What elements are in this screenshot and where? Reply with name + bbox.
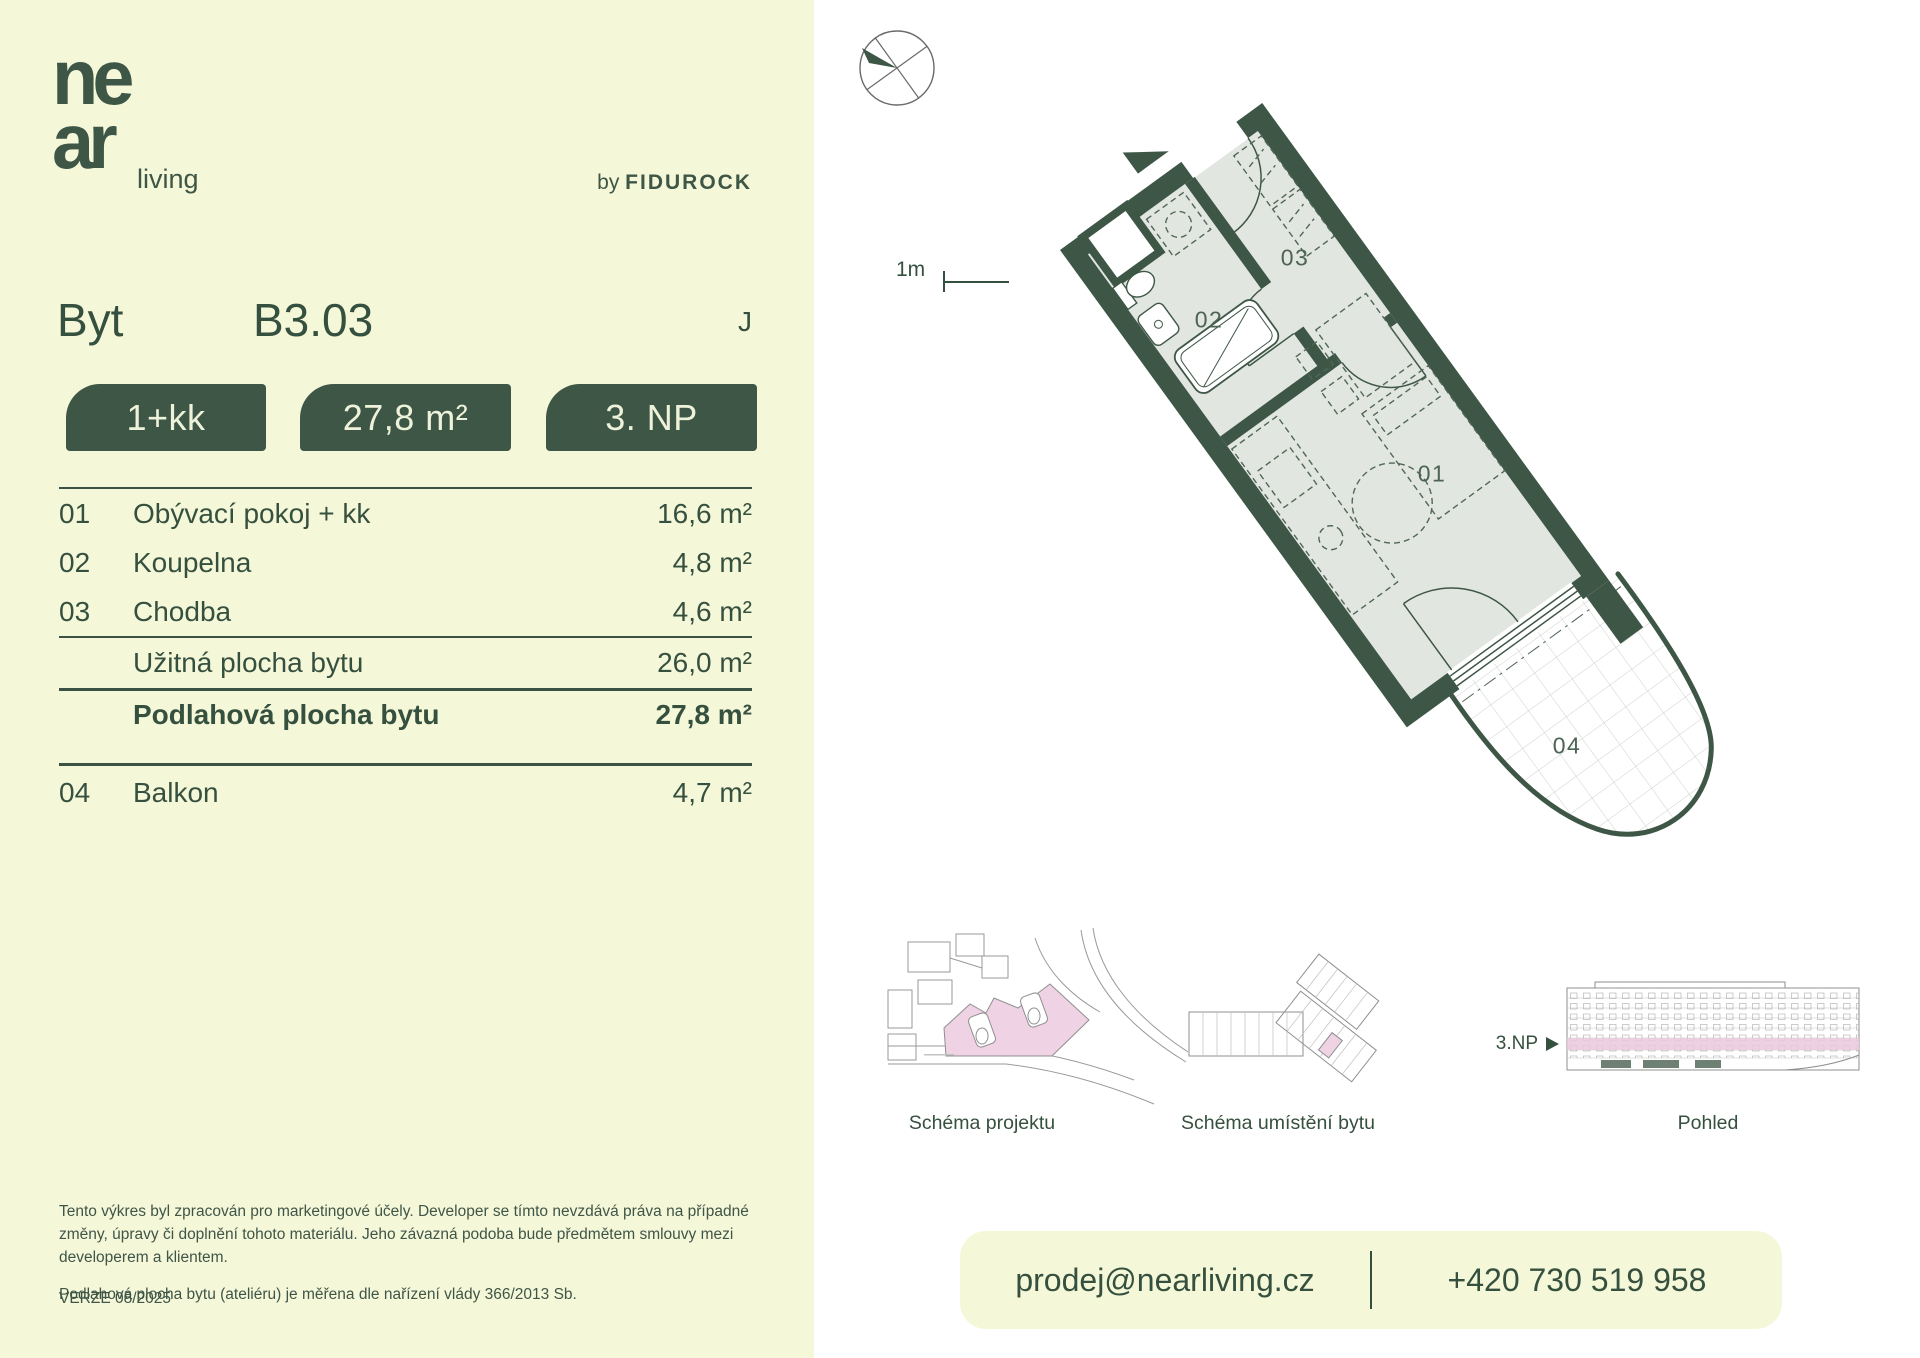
table-row: 03 Chodba 4,6 m² bbox=[59, 587, 752, 636]
room-number: 01 bbox=[59, 498, 133, 530]
unit-location-schematic bbox=[1183, 948, 1393, 1093]
total-area-label: Podlahová plocha bytu bbox=[133, 699, 656, 731]
total-area-value: 27,8 m² bbox=[656, 699, 753, 731]
developer-byline: by FIDUROCK bbox=[420, 171, 752, 195]
info-panel: ne ar living by FIDUROCK Byt B3.03 J 1+k… bbox=[0, 0, 814, 1358]
room-area: 4,6 m² bbox=[673, 596, 752, 628]
plan-room-label-04: 04 bbox=[1553, 733, 1582, 760]
floor-plan-drawing bbox=[1000, 55, 1760, 885]
table-row: 02 Koupelna 4,8 m² bbox=[59, 538, 752, 587]
byline-prefix: by bbox=[597, 171, 619, 194]
site-plan-schematic bbox=[886, 928, 1188, 1106]
logo-line-2: ar bbox=[52, 110, 129, 174]
room-number: 02 bbox=[59, 547, 133, 579]
contact-email[interactable]: prodej@nearliving.cz bbox=[960, 1262, 1370, 1299]
room-number: 03 bbox=[59, 596, 133, 628]
total-area-row: Podlahová plocha bytu 27,8 m² bbox=[59, 691, 752, 739]
site-plan-caption: Schéma projektu bbox=[862, 1112, 1102, 1135]
version-label: VERZE 08/2025 bbox=[59, 1290, 171, 1308]
floor-badge: 3. NP bbox=[546, 384, 757, 451]
room-area: 16,6 m² bbox=[657, 498, 752, 530]
plan-room-label-03: 03 bbox=[1281, 245, 1310, 272]
entrance-arrow-icon bbox=[1123, 130, 1169, 173]
room-number: 04 bbox=[59, 777, 133, 809]
floor-marker-arrow-icon bbox=[1546, 1037, 1559, 1051]
plan-room-label-02: 02 bbox=[1195, 307, 1224, 334]
room-area: 4,7 m² bbox=[673, 777, 752, 809]
scale-label: 1m bbox=[896, 258, 925, 282]
near-living-logo: ne ar bbox=[52, 46, 131, 174]
layout-badge: 1+kk bbox=[66, 384, 266, 451]
plan-room-label-01: 01 bbox=[1418, 461, 1447, 488]
floor-marker-label: 3.NP bbox=[1438, 1033, 1538, 1055]
room-name: Chodba bbox=[133, 596, 673, 628]
orientation-label: J bbox=[652, 306, 752, 338]
compass-icon bbox=[855, 26, 939, 110]
room-area-table: 01 Obývací pokoj + kk 16,6 m² 02 Koupeln… bbox=[59, 487, 752, 820]
third-floor-highlight bbox=[1567, 1038, 1859, 1050]
unit-type-label: Byt bbox=[57, 297, 123, 343]
disclaimer-paragraph-1: Tento výkres byl zpracován pro marketing… bbox=[59, 1200, 751, 1269]
elevation-caption: Pohled bbox=[1588, 1112, 1828, 1135]
logo-suffix: living bbox=[137, 164, 199, 195]
project-footprint-highlight bbox=[944, 984, 1089, 1056]
usable-area-value: 26,0 m² bbox=[657, 647, 752, 679]
area-badge: 27,8 m² bbox=[300, 384, 511, 451]
room-area: 4,8 m² bbox=[673, 547, 752, 579]
contact-phone[interactable]: +420 730 519 958 bbox=[1372, 1262, 1782, 1299]
contact-bar: prodej@nearliving.cz +420 730 519 958 bbox=[960, 1231, 1782, 1329]
usable-area-label: Užitná plocha bytu bbox=[133, 647, 657, 679]
unit-id: B3.03 bbox=[253, 297, 373, 343]
usable-area-row: Užitná plocha bytu 26,0 m² bbox=[59, 638, 752, 688]
room-name: Balkon bbox=[133, 777, 673, 809]
floor-plan: 01 02 03 04 bbox=[1000, 55, 1760, 885]
room-name: Obývací pokoj + kk bbox=[133, 498, 657, 530]
apartment-sheet: ne ar living by FIDUROCK Byt B3.03 J 1+k… bbox=[0, 0, 1920, 1358]
room-name: Koupelna bbox=[133, 547, 673, 579]
table-row: 01 Obývací pokoj + kk 16,6 m² bbox=[59, 489, 752, 538]
fidurock-wordmark: FIDUROCK bbox=[625, 171, 752, 194]
balcony-row: 04 Balkon 4,7 m² bbox=[59, 766, 752, 820]
elevation-schematic bbox=[1555, 980, 1870, 1082]
unit-location-caption: Schéma umístění bytu bbox=[1148, 1112, 1408, 1135]
